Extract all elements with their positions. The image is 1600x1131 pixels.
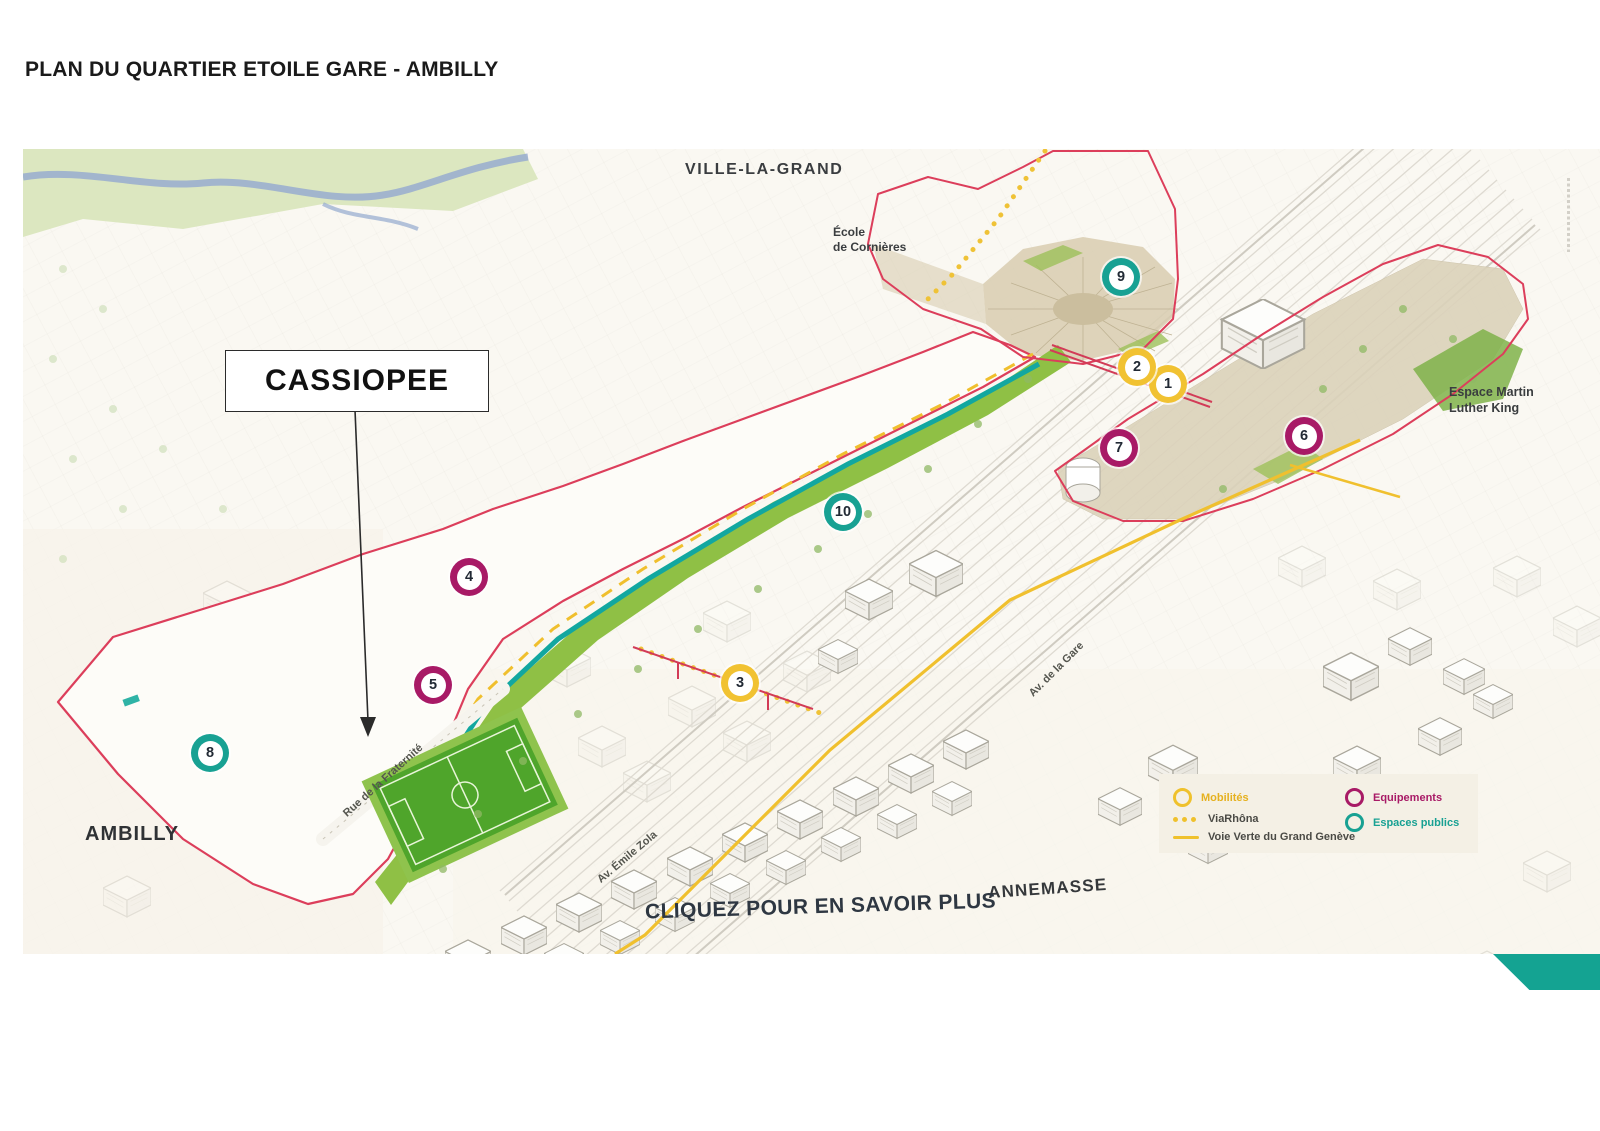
area-label-ambilly: AMBILLY [85, 823, 179, 846]
map-marker-8[interactable]: 8 [191, 734, 229, 772]
espaces-publics-circle-icon [1345, 813, 1364, 832]
mobilites-circle-icon [1173, 788, 1192, 807]
plan-page: PLAN DU QUARTIER ETOILE GARE - AMBILLY [0, 0, 1600, 1131]
legend-item-espaces-publics: Espaces publics [1345, 813, 1459, 832]
map-marker-10[interactable]: 10 [824, 493, 862, 531]
legend-item-mobilites: Mobilités [1173, 788, 1355, 807]
area-label-ville-la-grand: VILLE-LA-GRAND [685, 161, 843, 179]
equipements-circle-icon [1345, 788, 1364, 807]
map-marker-9[interactable]: 9 [1102, 258, 1140, 296]
legend-item-equipements: Equipements [1345, 788, 1459, 807]
map-marker-5[interactable]: 5 [414, 666, 452, 704]
legend-item-viarhona: ViaRhôna [1173, 813, 1355, 825]
voie-verte-line-icon [1173, 836, 1199, 839]
map-marker-7[interactable]: 7 [1100, 429, 1138, 467]
legend-item-voie-verte: Voie Verte du Grand Genève [1173, 831, 1355, 843]
map-marker-3[interactable]: 3 [721, 664, 759, 702]
quartier-map[interactable]: VILLE-LA-GRAND AMBILLY ANNEMASSE CLIQUEZ… [23, 149, 1600, 954]
map-marker-4[interactable]: 4 [450, 558, 488, 596]
place-label-espace-martin-luther-king: Espace Martin Luther King [1449, 385, 1534, 416]
map-legend: Mobilités ViaRhôna Voie Verte du Grand G… [1159, 774, 1478, 853]
map-marker-6[interactable]: 6 [1285, 417, 1323, 455]
vertical-credit-text [1567, 178, 1570, 252]
teal-corner-accent [1493, 954, 1600, 990]
viarhona-dotted-line-icon [1173, 817, 1199, 822]
place-label-ecole-de-cornieres: École de Cornières [833, 225, 906, 255]
map-marker-2[interactable]: 2 [1118, 348, 1156, 386]
page-title: PLAN DU QUARTIER ETOILE GARE - AMBILLY [25, 58, 499, 82]
cassiopee-callout: CASSIOPEE [225, 350, 489, 412]
